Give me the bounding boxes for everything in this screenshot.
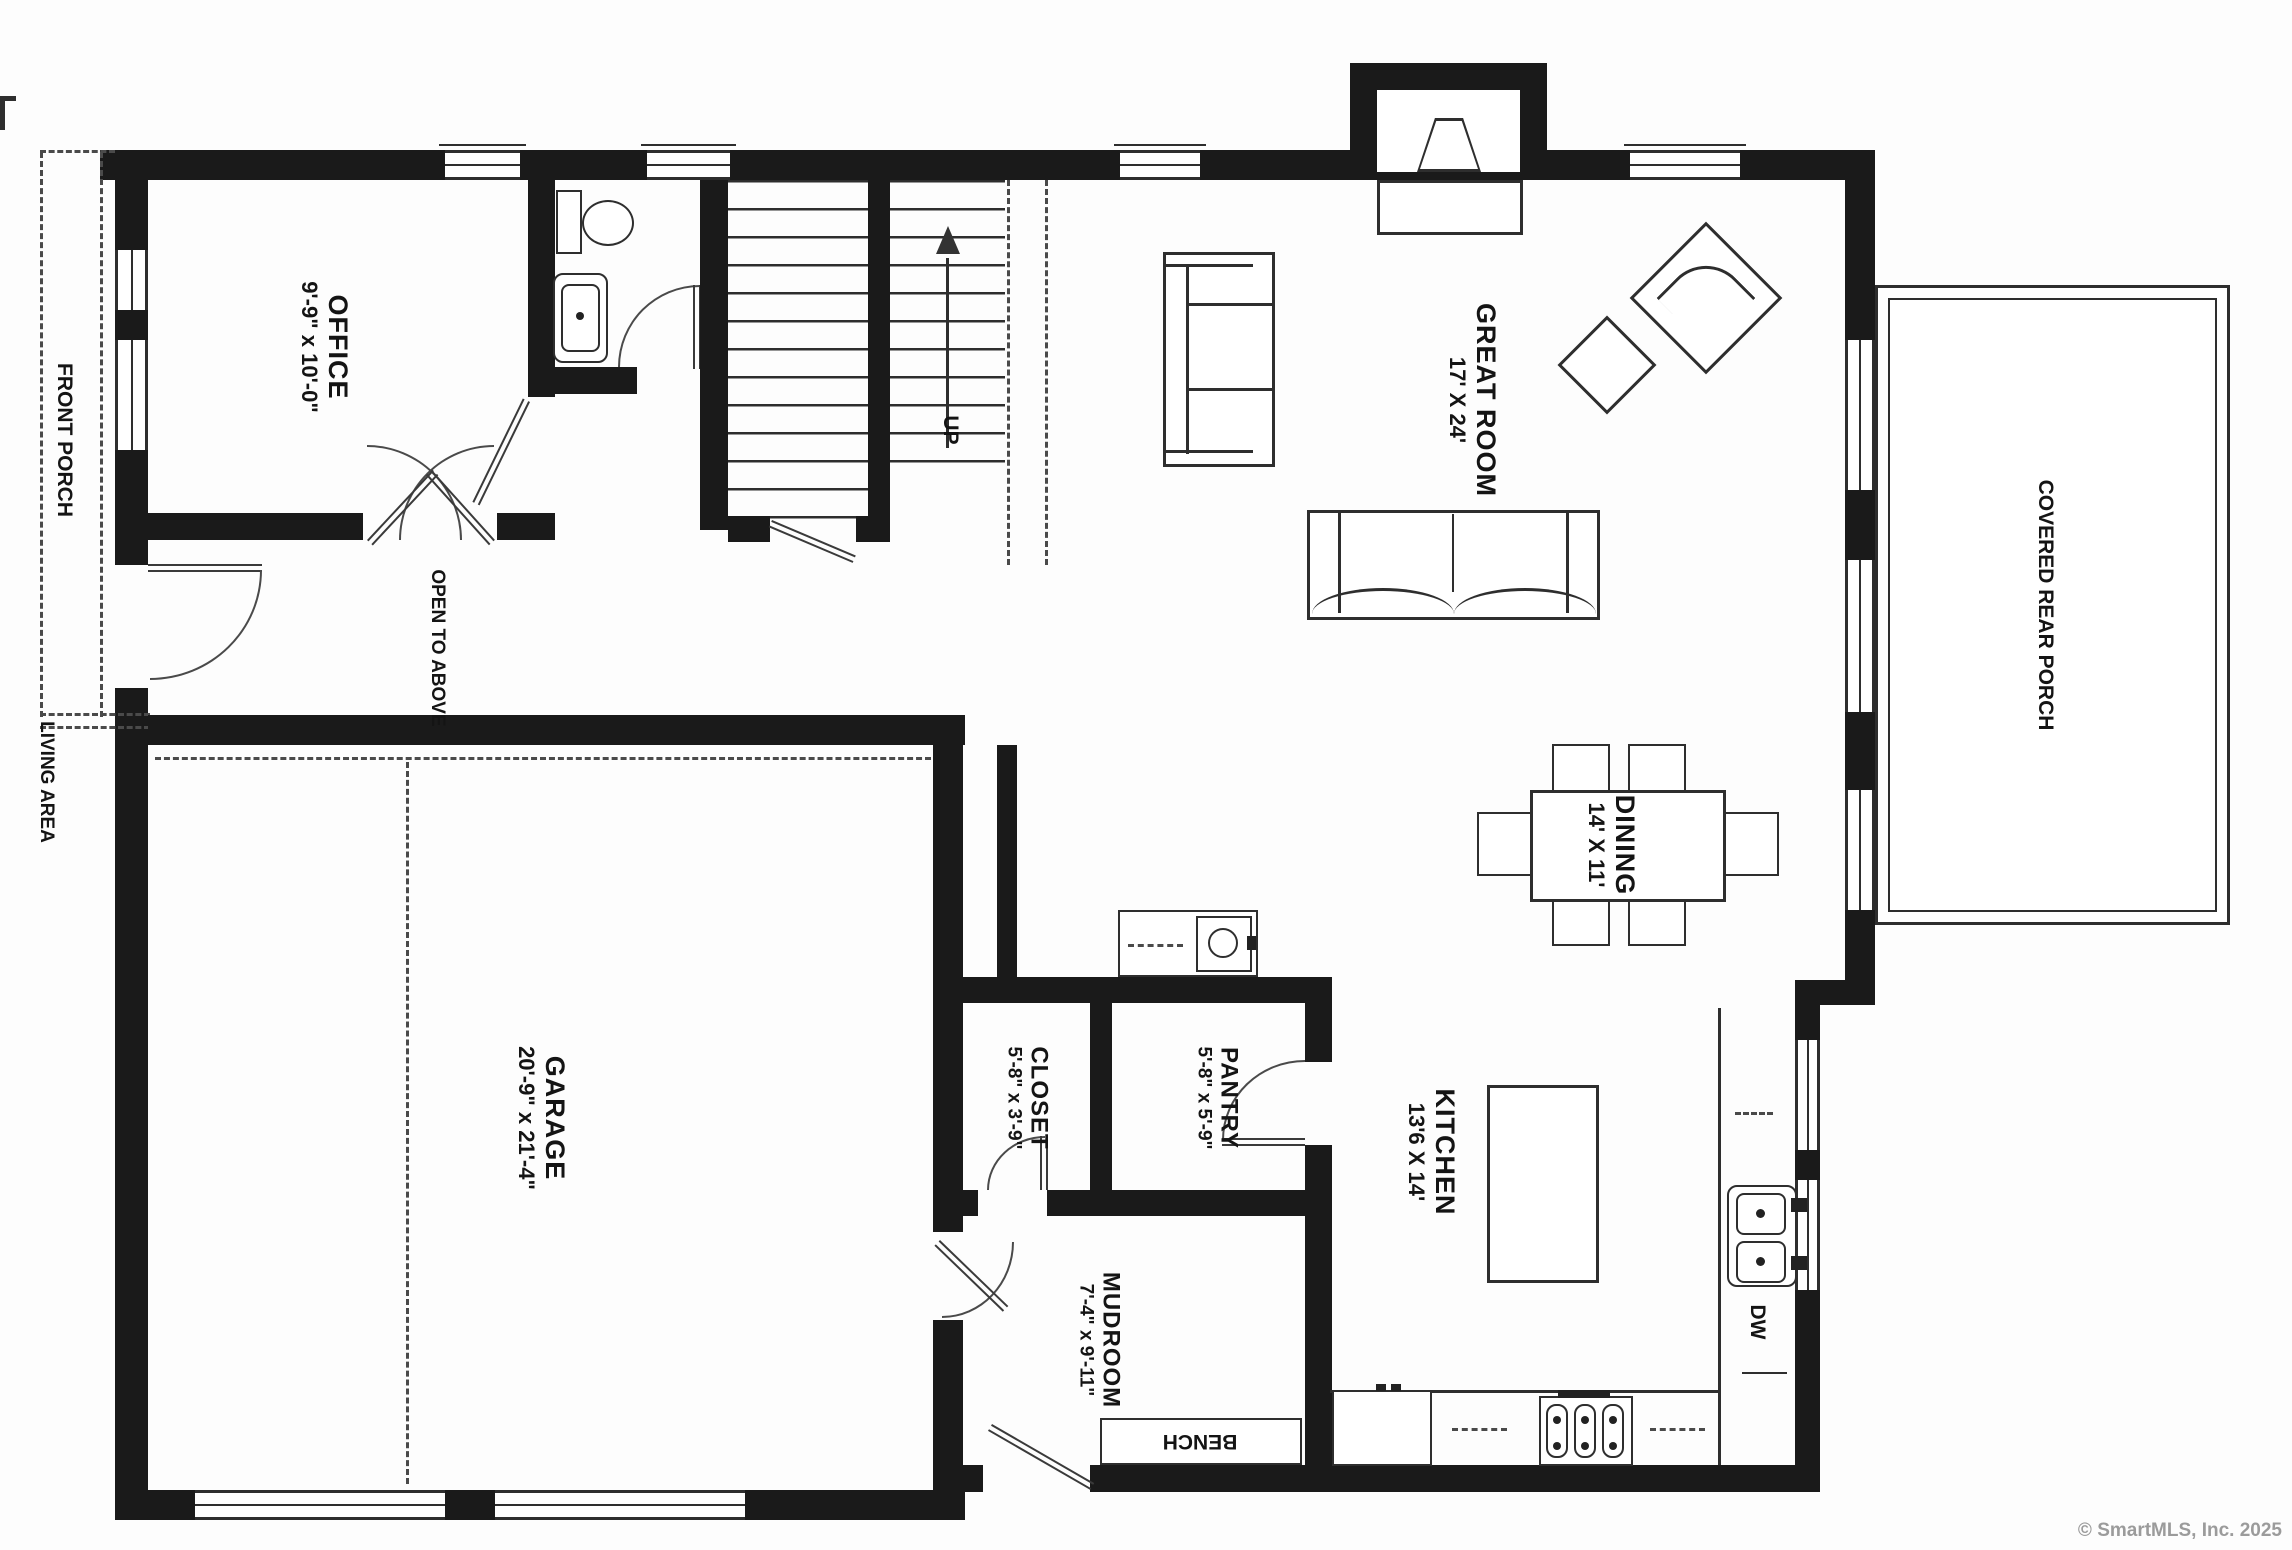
bath-door-swing-arc bbox=[618, 285, 700, 367]
burner bbox=[1581, 1442, 1589, 1450]
room-dims: 5'-8" x 3'-9" bbox=[1003, 1046, 1025, 1149]
dishwasher-label: DW bbox=[1745, 1305, 1769, 1340]
burner bbox=[1609, 1442, 1617, 1450]
scan-artifact bbox=[0, 96, 16, 101]
porch-outline bbox=[40, 150, 115, 153]
window bbox=[1120, 150, 1200, 180]
dining-chair bbox=[1724, 812, 1779, 876]
wall-segment bbox=[1845, 712, 1875, 790]
wall-segment bbox=[1795, 1290, 1820, 1492]
range-back bbox=[1558, 1390, 1610, 1398]
refrigerator bbox=[1332, 1390, 1432, 1466]
wall-segment bbox=[1305, 1145, 1332, 1490]
sofa-cushion-line bbox=[1188, 388, 1273, 391]
wall-segment bbox=[700, 180, 728, 530]
stair-center-wall bbox=[868, 180, 890, 530]
scan-artifact bbox=[0, 96, 5, 130]
rear-porch-label: COVERED REAR PORCH bbox=[2033, 480, 2057, 731]
garage-ceiling-line bbox=[155, 757, 931, 760]
wall-segment bbox=[115, 688, 148, 1520]
bar-sink-basin bbox=[1208, 928, 1238, 958]
porch-outline bbox=[100, 152, 103, 717]
wall-segment bbox=[1795, 1005, 1820, 1040]
window bbox=[1630, 150, 1740, 180]
dining-chair bbox=[1628, 744, 1686, 792]
garage-bay-line bbox=[406, 762, 409, 1484]
wall-segment bbox=[115, 1490, 195, 1520]
window bbox=[647, 150, 730, 180]
room-dims: 13'6 X 14' bbox=[1404, 1089, 1429, 1216]
wall-segment bbox=[1305, 977, 1332, 1062]
wall-segment bbox=[856, 516, 890, 542]
wall-segment bbox=[148, 513, 363, 540]
porch-outline bbox=[40, 152, 43, 717]
garage-door bbox=[495, 1490, 745, 1520]
room-name: PANTRY bbox=[1215, 1046, 1243, 1149]
wall-segment bbox=[933, 715, 963, 1232]
sofa bbox=[1163, 252, 1275, 467]
wall-segment bbox=[1845, 490, 1875, 560]
wall-segment bbox=[445, 1490, 495, 1520]
open-above-boundary bbox=[1045, 180, 1048, 565]
wall-segment bbox=[528, 150, 555, 397]
wall-segment bbox=[148, 715, 965, 745]
sofa-cushion-line bbox=[1452, 514, 1454, 592]
refrigerator-handle bbox=[1391, 1384, 1401, 1391]
exterior-door-leaf bbox=[988, 1424, 1094, 1490]
wall-segment bbox=[1047, 1190, 1305, 1216]
cabinet-centerline bbox=[1650, 1428, 1705, 1431]
wall-segment bbox=[528, 367, 637, 394]
sink-drain bbox=[576, 312, 584, 320]
burner bbox=[1553, 1442, 1561, 1450]
side-table bbox=[1558, 316, 1657, 415]
room-name: CLOSET bbox=[1025, 1046, 1053, 1149]
window bbox=[1845, 340, 1875, 490]
cabinet-centerline bbox=[1452, 1428, 1507, 1431]
room-dims: 9'-9" x 10'-0" bbox=[297, 281, 322, 413]
fireplace-hearth bbox=[1377, 180, 1523, 235]
armchair bbox=[1630, 222, 1783, 375]
wall-segment bbox=[1090, 1465, 1305, 1492]
floor-plan: UP BENCH bbox=[0, 0, 2292, 1550]
bench-label: BENCH bbox=[1163, 1429, 1238, 1453]
room-name: KITCHEN bbox=[1429, 1089, 1460, 1216]
room-dims: 17' X 24' bbox=[1445, 303, 1470, 497]
cabinet-centerline bbox=[1128, 944, 1183, 947]
window bbox=[115, 250, 148, 310]
room-label-great-room: GREAT ROOM 17' X 24' bbox=[1445, 303, 1501, 497]
living-area-label: LIVING AREA bbox=[35, 721, 57, 843]
wall-segment bbox=[100, 150, 445, 180]
refrigerator-handle bbox=[1376, 1384, 1386, 1391]
room-name: GREAT ROOM bbox=[1470, 303, 1501, 497]
window bbox=[445, 150, 520, 180]
wall-segment bbox=[963, 1190, 978, 1216]
wall-segment bbox=[1845, 910, 1875, 1005]
stair-treads bbox=[728, 180, 868, 528]
window bbox=[1795, 1040, 1820, 1150]
wall-segment bbox=[1200, 150, 1350, 180]
sink-drain bbox=[1756, 1257, 1765, 1266]
room-label-dining: DINING 14' X 11' bbox=[1584, 795, 1640, 896]
room-label-closet: CLOSET 5'-8" x 3'-9" bbox=[1003, 1046, 1052, 1149]
wall-segment bbox=[745, 1490, 965, 1520]
room-label-garage: GARAGE 20'-9" x 21'-4" bbox=[514, 1046, 570, 1190]
wall-segment bbox=[1845, 180, 1875, 340]
wall-segment bbox=[1795, 1150, 1820, 1180]
dishwasher-line bbox=[1742, 1372, 1787, 1374]
up-arrow-head bbox=[936, 226, 960, 254]
room-name: GARAGE bbox=[539, 1046, 570, 1190]
wall-segment bbox=[115, 150, 148, 250]
bar-sink-faucet bbox=[1247, 936, 1256, 950]
cabinet-centerline bbox=[1735, 1112, 1773, 1115]
garage-door bbox=[195, 1490, 445, 1520]
wall-segment bbox=[963, 977, 1330, 1003]
sofa-back-line bbox=[1186, 266, 1189, 454]
dining-chair bbox=[1628, 900, 1686, 946]
armchair-back bbox=[1657, 249, 1756, 348]
sink-faucet bbox=[1791, 1198, 1807, 1212]
front-porch-label: FRONT PORCH bbox=[52, 363, 76, 517]
room-name: OFFICE bbox=[322, 281, 353, 413]
wall-segment bbox=[115, 450, 148, 565]
wall-segment bbox=[1305, 1465, 1820, 1492]
wall-segment bbox=[115, 310, 148, 340]
room-label-pantry: PANTRY 5'-8" x 5'-9" bbox=[1193, 1046, 1242, 1149]
sink-faucet bbox=[1791, 1256, 1807, 1270]
wall-segment bbox=[730, 150, 1120, 180]
room-dims: 20'-9" x 21'-4" bbox=[514, 1046, 539, 1190]
wall-segment bbox=[1090, 1003, 1112, 1191]
front-door-swing-arc bbox=[150, 570, 262, 680]
wall-segment bbox=[997, 745, 1017, 999]
room-label-kitchen: KITCHEN 13'6 X 14' bbox=[1404, 1089, 1460, 1216]
sink-drain bbox=[1756, 1209, 1765, 1218]
counter-edge bbox=[1718, 1008, 1721, 1465]
dining-chair bbox=[1552, 900, 1610, 946]
burner bbox=[1581, 1416, 1589, 1424]
room-label-mudroom: MUDROOM 7'-4" x 9'-11" bbox=[1075, 1272, 1124, 1408]
wall-segment bbox=[1740, 150, 1875, 180]
wall-segment bbox=[1547, 150, 1630, 180]
window bbox=[1845, 560, 1875, 712]
copyright-text: © SmartMLS, Inc. 2025 bbox=[2078, 1520, 2282, 1542]
dining-chair bbox=[1552, 744, 1610, 792]
toilet-tank bbox=[556, 190, 582, 254]
room-dims: 5'-8" x 5'-9" bbox=[1193, 1046, 1215, 1149]
open-above-boundary bbox=[1007, 180, 1010, 565]
room-dims: 14' X 11' bbox=[1584, 795, 1609, 896]
open-to-above-label: OPEN TO ABOVE bbox=[426, 569, 448, 726]
kitchen-island bbox=[1487, 1085, 1599, 1283]
window bbox=[1845, 790, 1875, 910]
room-dims: 7'-4" x 9'-11" bbox=[1075, 1272, 1097, 1408]
wall-segment bbox=[963, 1465, 983, 1492]
room-name: DINING bbox=[1609, 795, 1640, 896]
sofa-arm-line bbox=[1165, 450, 1253, 453]
up-label: UP bbox=[938, 415, 962, 444]
burner bbox=[1553, 1416, 1561, 1424]
room-name: MUDROOM bbox=[1097, 1272, 1125, 1408]
window bbox=[1795, 1180, 1820, 1290]
toilet-bowl bbox=[582, 200, 634, 246]
room-label-office: OFFICE 9'-9" x 10'-0" bbox=[297, 281, 353, 413]
wall-segment bbox=[728, 516, 770, 542]
sofa-cushion-line bbox=[1188, 303, 1273, 306]
sofa-arm-line bbox=[1165, 264, 1253, 267]
wall-segment bbox=[497, 513, 555, 540]
dining-chair bbox=[1477, 812, 1532, 876]
window bbox=[115, 340, 148, 450]
burner bbox=[1609, 1416, 1617, 1424]
porch-outline bbox=[40, 713, 150, 716]
